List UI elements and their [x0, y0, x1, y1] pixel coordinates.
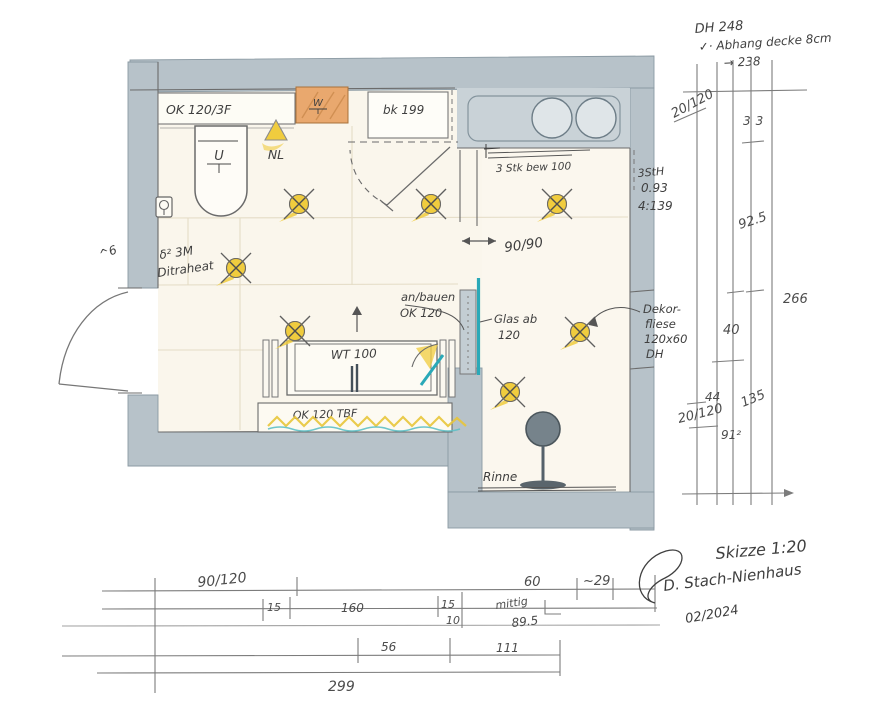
hob-circle-right	[576, 98, 616, 138]
washer-block: W	[296, 87, 348, 123]
anbau-note-1: an/bauen	[401, 290, 455, 304]
tile-note-1: Dekor-	[643, 302, 681, 316]
dim-bottom-7: mittig	[495, 595, 529, 612]
tile-note-4: DH	[646, 347, 664, 361]
glass-note-1: Glas ab	[494, 312, 537, 326]
stair-note-2: 0.93	[641, 181, 668, 195]
dim-bottom-0: 90/120	[197, 570, 248, 591]
sketch-page: OK 120/3F W bk 199 U NL	[0, 0, 872, 705]
dim-right-8: 91²	[721, 428, 741, 442]
glass-note-2: 120	[498, 328, 520, 342]
dim-bottom-10: 111	[496, 641, 519, 655]
dim-bottom-6: 10	[446, 614, 460, 627]
ceiling-note-1: DH 248	[694, 19, 744, 37]
cabinet: bk 199	[368, 90, 452, 140]
dim-right-1: 33	[743, 114, 768, 128]
hob-circle-left	[532, 98, 572, 138]
door-note: ^6	[97, 242, 119, 261]
dim-bottom-4: 160	[341, 601, 364, 615]
dim-right-2: 92.5	[737, 210, 769, 233]
bench: OK 120 TBF	[258, 403, 466, 432]
scale-label: Skizze 1:20	[715, 536, 808, 563]
date-text: 02/2024	[684, 603, 740, 627]
ceiling-note-3: → 238	[723, 54, 761, 70]
stair-note-3: 4:139	[638, 199, 673, 213]
ceiling-note: DH 248 ✓· Abhang decke 8cm → 238	[694, 19, 832, 70]
dimension-block-bottom	[62, 575, 660, 693]
dim-right-4: 40	[723, 323, 740, 338]
counter-label: OK 120/3F	[166, 102, 232, 117]
entrance-door	[59, 292, 128, 391]
anbau-note-2: OK 120	[400, 306, 442, 320]
dimension-chain-right-labels: 20/120 33 92.5 266 40 44 135 20/120 91²	[669, 87, 808, 442]
tile-note-3: 120x60	[644, 332, 687, 346]
paper-holder	[156, 197, 172, 217]
bench-label: OK 120 TBF	[293, 407, 359, 422]
signature-text: D. Stach-Nienhaus	[662, 560, 802, 595]
shower-wall-bottom	[448, 492, 654, 528]
washer-mark: W	[313, 98, 324, 109]
dim-bottom-5: 15	[441, 598, 455, 611]
vanity-label: WT 100	[331, 346, 378, 362]
dim-right-3: 266	[783, 292, 808, 307]
dim-bottom-1: 60	[524, 575, 541, 590]
dim-bottom-9: 56	[381, 640, 397, 654]
dim-right-6: 135	[739, 388, 768, 411]
dim-bottom-2: ~29	[583, 574, 610, 589]
top-wall	[130, 56, 654, 92]
shower-head	[526, 412, 560, 446]
tile-note-2: fliese	[645, 317, 676, 331]
floor-plan-sketch: OK 120/3F W bk 199 U NL	[0, 0, 872, 705]
title-block: Skizze 1:20 D. Stach-Nienhaus 02/2024	[639, 536, 807, 627]
wc-mark: U	[214, 149, 224, 164]
dim-bottom-11: 299	[328, 679, 355, 695]
left-wall-upper	[128, 62, 158, 288]
drain-label: Rinne	[483, 470, 517, 484]
dim-bottom-3: 15	[267, 601, 281, 614]
cabinet-label: bk 199	[383, 103, 424, 117]
stair-note: 3StH 0.93 4:139	[637, 165, 672, 213]
wc: U	[195, 126, 247, 216]
dim-bottom-8: 89.5	[511, 613, 539, 630]
stair-note-1: 3StH	[637, 165, 665, 180]
dimension-block-bottom-labels: 90/120 60 ~29 15 160 15 10 mittig 89.5 5…	[197, 570, 611, 695]
nl-label: NL	[268, 147, 284, 162]
